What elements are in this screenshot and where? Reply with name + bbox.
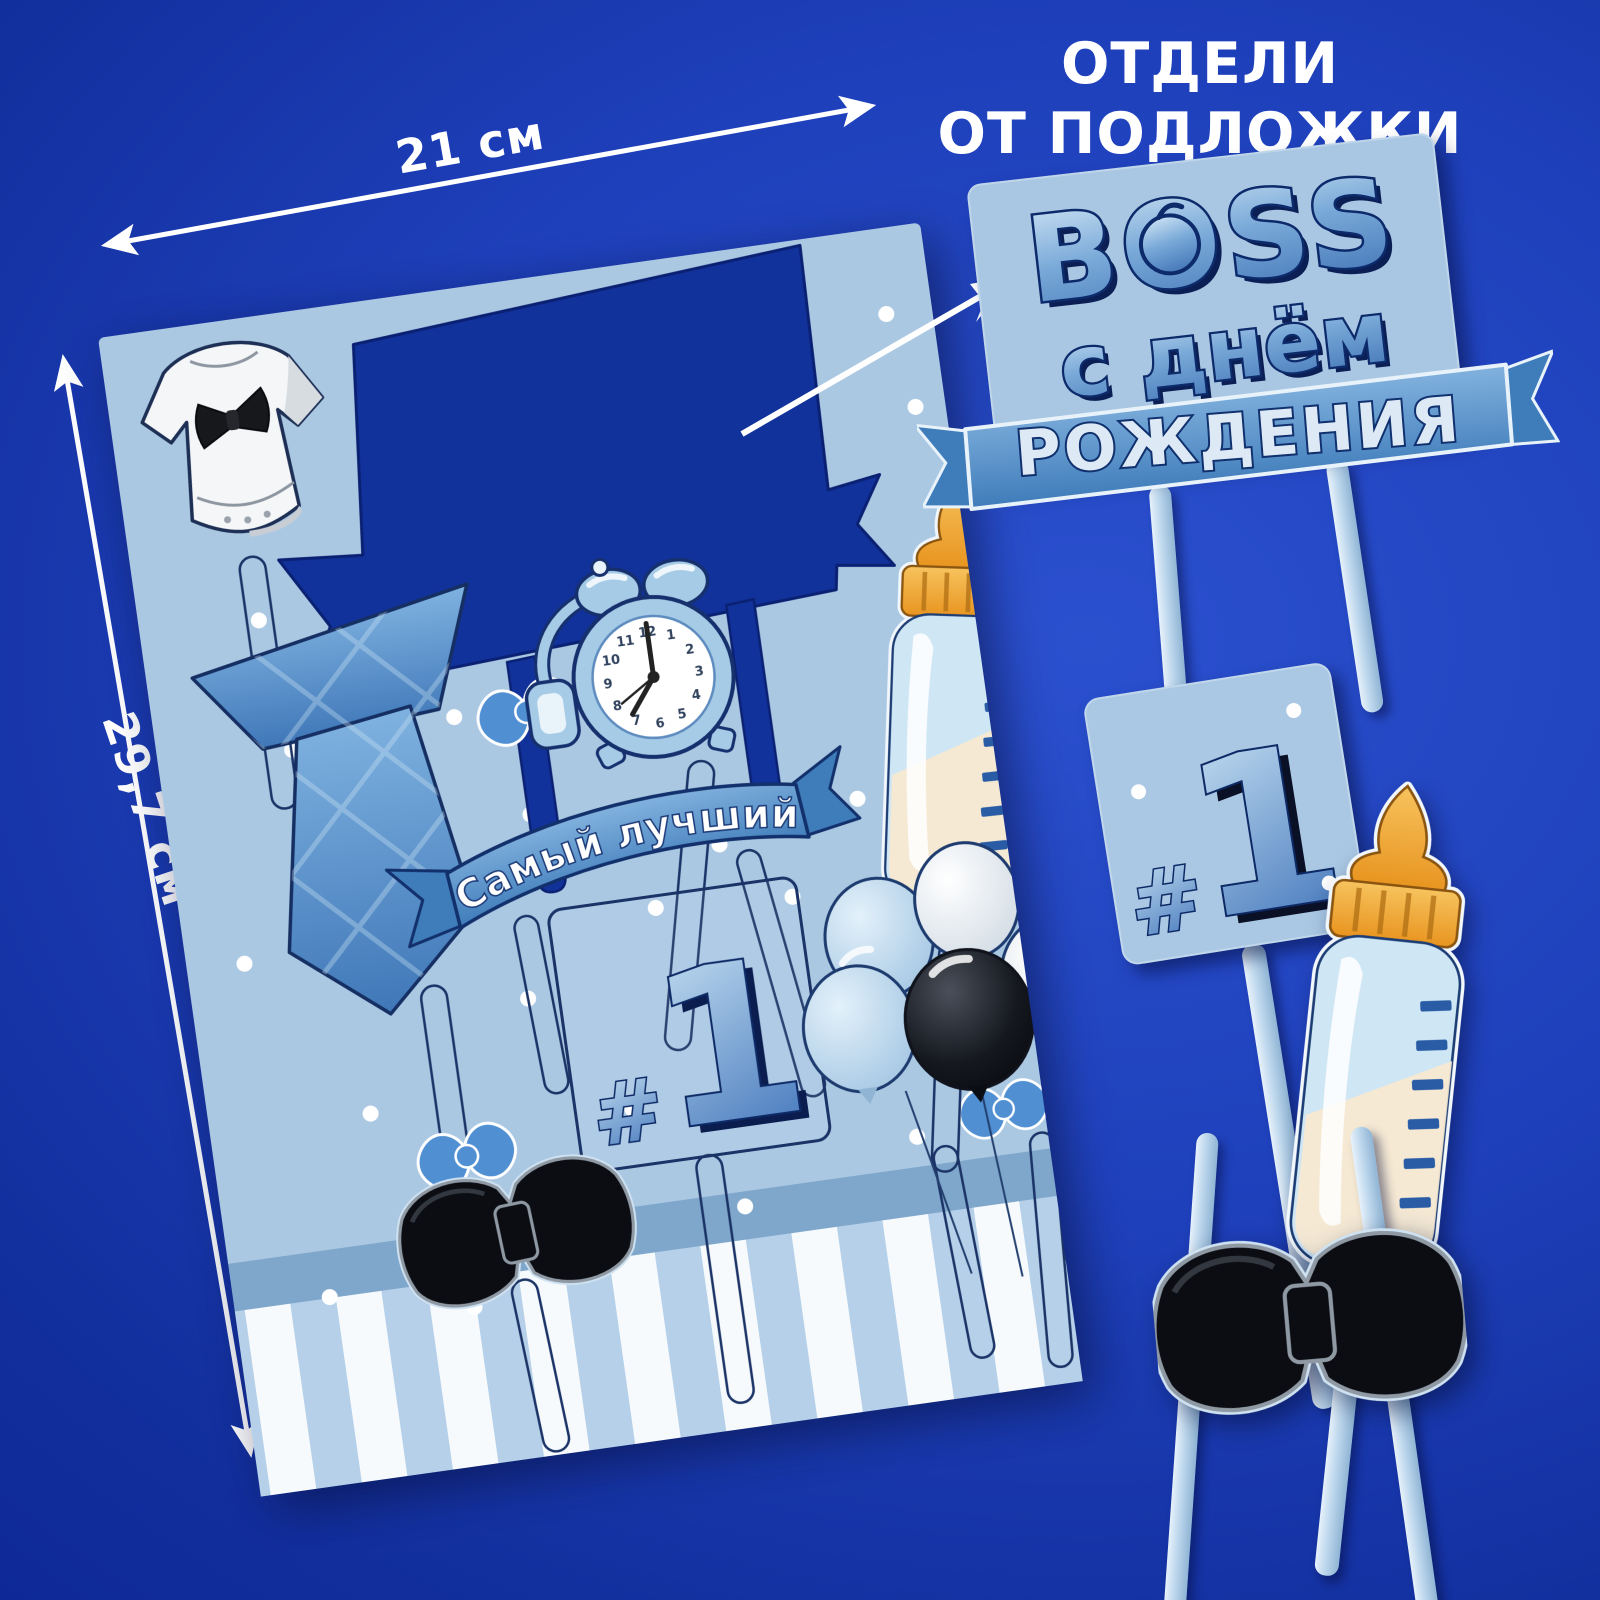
instruction-line1: ОТДЕЛИ [880,30,1520,100]
hash-symbol: # [586,1059,670,1167]
black-bow-tie-icon [1147,1212,1473,1438]
width-arrow-icon [91,82,886,268]
bow-tie-pick [1145,1205,1485,1600]
clock-numeral: 11 [615,634,635,651]
clock-numeral: 10 [601,653,621,670]
hash-symbol: # [1122,844,1211,957]
product-image: ОТДЕЛИ ОТ ПОДЛОЖКИ 21 см 29,7 см [0,0,1600,1600]
